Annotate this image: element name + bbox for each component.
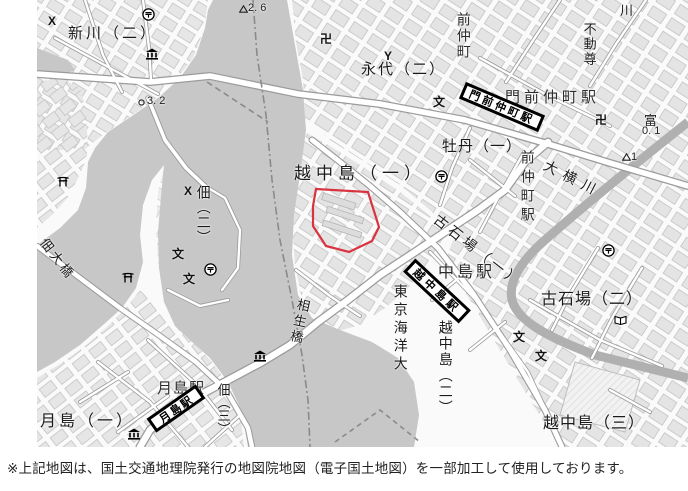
map-figure: 新川（二）永代（二）牡丹（一）越中島（一）古石場（一）古石場（二）越中島（三）月… xyxy=(0,0,688,491)
station-monzennakacho-vert: 前仲町 xyxy=(456,12,471,60)
map-region: 新川（二）永代（二）牡丹（一）越中島（一）古石場（一）古石場（二）越中島（三）月… xyxy=(37,0,688,447)
fire-icon: Y xyxy=(384,50,392,62)
district-shinkawa2: 新川（二） xyxy=(68,26,158,42)
district-etchujima1: 越中島（一） xyxy=(294,165,426,183)
temple-icon: 卍 xyxy=(595,114,607,126)
district-etchujima2: 越中島（二） xyxy=(438,320,453,416)
district-tsukishima1: 月島（一） xyxy=(40,414,135,431)
district-tsukuda3: 佃（三） xyxy=(216,383,230,435)
poi-fudoson: 不動尊 xyxy=(582,22,596,67)
district-botan1: 牡丹（一） xyxy=(442,139,522,155)
elev-1: 1 xyxy=(631,152,637,164)
district-tsukuda2: 佃（二） xyxy=(196,185,211,245)
elev-3-2: 3. 2 xyxy=(147,96,165,108)
station-monzennakacho-text: 門前仲町駅 xyxy=(505,90,600,106)
station-etchujima-text: 中島駅 xyxy=(438,265,495,282)
bridge-tsukudaohashi: 佃大橋 xyxy=(37,236,77,282)
elev-2-6: 2. 6 xyxy=(248,3,266,15)
police-icon: X xyxy=(184,185,192,197)
school-icon: 文 xyxy=(172,248,184,260)
river-oyokogawa: 大横川 xyxy=(541,158,604,200)
station-monzennakacho-vert2: 前仲町駅 xyxy=(520,150,535,226)
school-icon: 文 xyxy=(183,273,195,285)
map-attribution-caption: ※上記地図は、国土交通地理院発行の地図院地図（電子国土地図）を一部加工して使用し… xyxy=(7,457,683,477)
police-icon: X xyxy=(48,15,56,27)
school-icon: 文 xyxy=(513,331,525,343)
river-kawa-fragment: 川 xyxy=(620,4,633,18)
school-icon: 文 xyxy=(535,350,547,362)
poi-kaiyodai: 東京海洋大 xyxy=(393,284,408,374)
bridge-aioibashi: 相生橋 xyxy=(287,297,310,347)
district-eitai2: 永代（二） xyxy=(361,62,446,78)
map-labels-layer: 新川（二）永代（二）牡丹（一）越中島（一）古石場（一）古石場（二）越中島（三）月… xyxy=(37,0,688,447)
district-etchujima3: 越中島（三） xyxy=(543,416,645,433)
school-icon: 文 xyxy=(433,96,445,108)
district-koishikawa2: 古石場（二） xyxy=(541,292,643,309)
temple-icon: 卍 xyxy=(320,33,332,45)
elev-0-1: 0. 1 xyxy=(642,126,660,138)
